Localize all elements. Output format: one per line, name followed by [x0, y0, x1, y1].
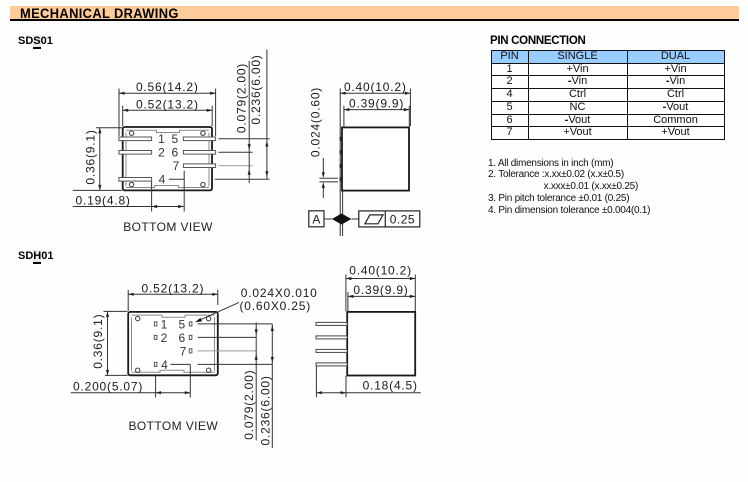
svg-text:0.52(13.2): 0.52(13.2) — [136, 97, 199, 111]
svg-text:0.40(10.2): 0.40(10.2) — [344, 80, 407, 94]
svg-text:BOTTOM VIEW: BOTTOM VIEW — [129, 419, 219, 433]
svg-text:6: 6 — [171, 146, 178, 160]
svg-text:0.39(9.9): 0.39(9.9) — [353, 283, 408, 297]
svg-text:0.40(10.2): 0.40(10.2) — [349, 263, 412, 277]
svg-text:4: 4 — [159, 173, 166, 187]
svg-text:0.079(2.00): 0.079(2.00) — [242, 370, 256, 440]
svg-text:0.236(6.00): 0.236(6.00) — [249, 54, 263, 124]
svg-text:7: 7 — [180, 344, 187, 358]
svg-text:0.200(5.07): 0.200(5.07) — [73, 380, 143, 394]
svg-text:2: 2 — [158, 146, 165, 160]
svg-text:7: 7 — [173, 159, 180, 173]
svg-text:0.56(14.2): 0.56(14.2) — [136, 80, 199, 94]
svg-text:0.19(4.8): 0.19(4.8) — [76, 194, 131, 208]
svg-text:0.36(9.1): 0.36(9.1) — [84, 129, 98, 184]
svg-text:5: 5 — [178, 317, 185, 331]
svg-text:1: 1 — [161, 317, 168, 331]
svg-text:0.36(9.1): 0.36(9.1) — [91, 314, 105, 369]
svg-text:0.024X0.010: 0.024X0.010 — [241, 286, 318, 300]
svg-text:1: 1 — [158, 132, 165, 146]
svg-text:0.39(9.9): 0.39(9.9) — [349, 97, 404, 111]
svg-text:(0.60X0.25): (0.60X0.25) — [240, 299, 312, 313]
svg-text:0.25: 0.25 — [390, 212, 415, 226]
svg-text:0.079(2.00): 0.079(2.00) — [235, 63, 249, 133]
svg-text:0.18(4.5): 0.18(4.5) — [363, 379, 418, 393]
svg-text:A: A — [312, 212, 320, 226]
svg-text:0.236(6.00): 0.236(6.00) — [259, 375, 273, 445]
svg-text:5: 5 — [171, 132, 178, 146]
svg-text:2: 2 — [161, 331, 168, 345]
svg-text:6: 6 — [178, 331, 185, 345]
svg-text:BOTTOM VIEW: BOTTOM VIEW — [123, 220, 213, 234]
svg-text:4: 4 — [161, 358, 168, 372]
svg-text:0.52(13.2): 0.52(13.2) — [142, 281, 205, 295]
svg-text:0.024(0.60): 0.024(0.60) — [308, 87, 322, 157]
